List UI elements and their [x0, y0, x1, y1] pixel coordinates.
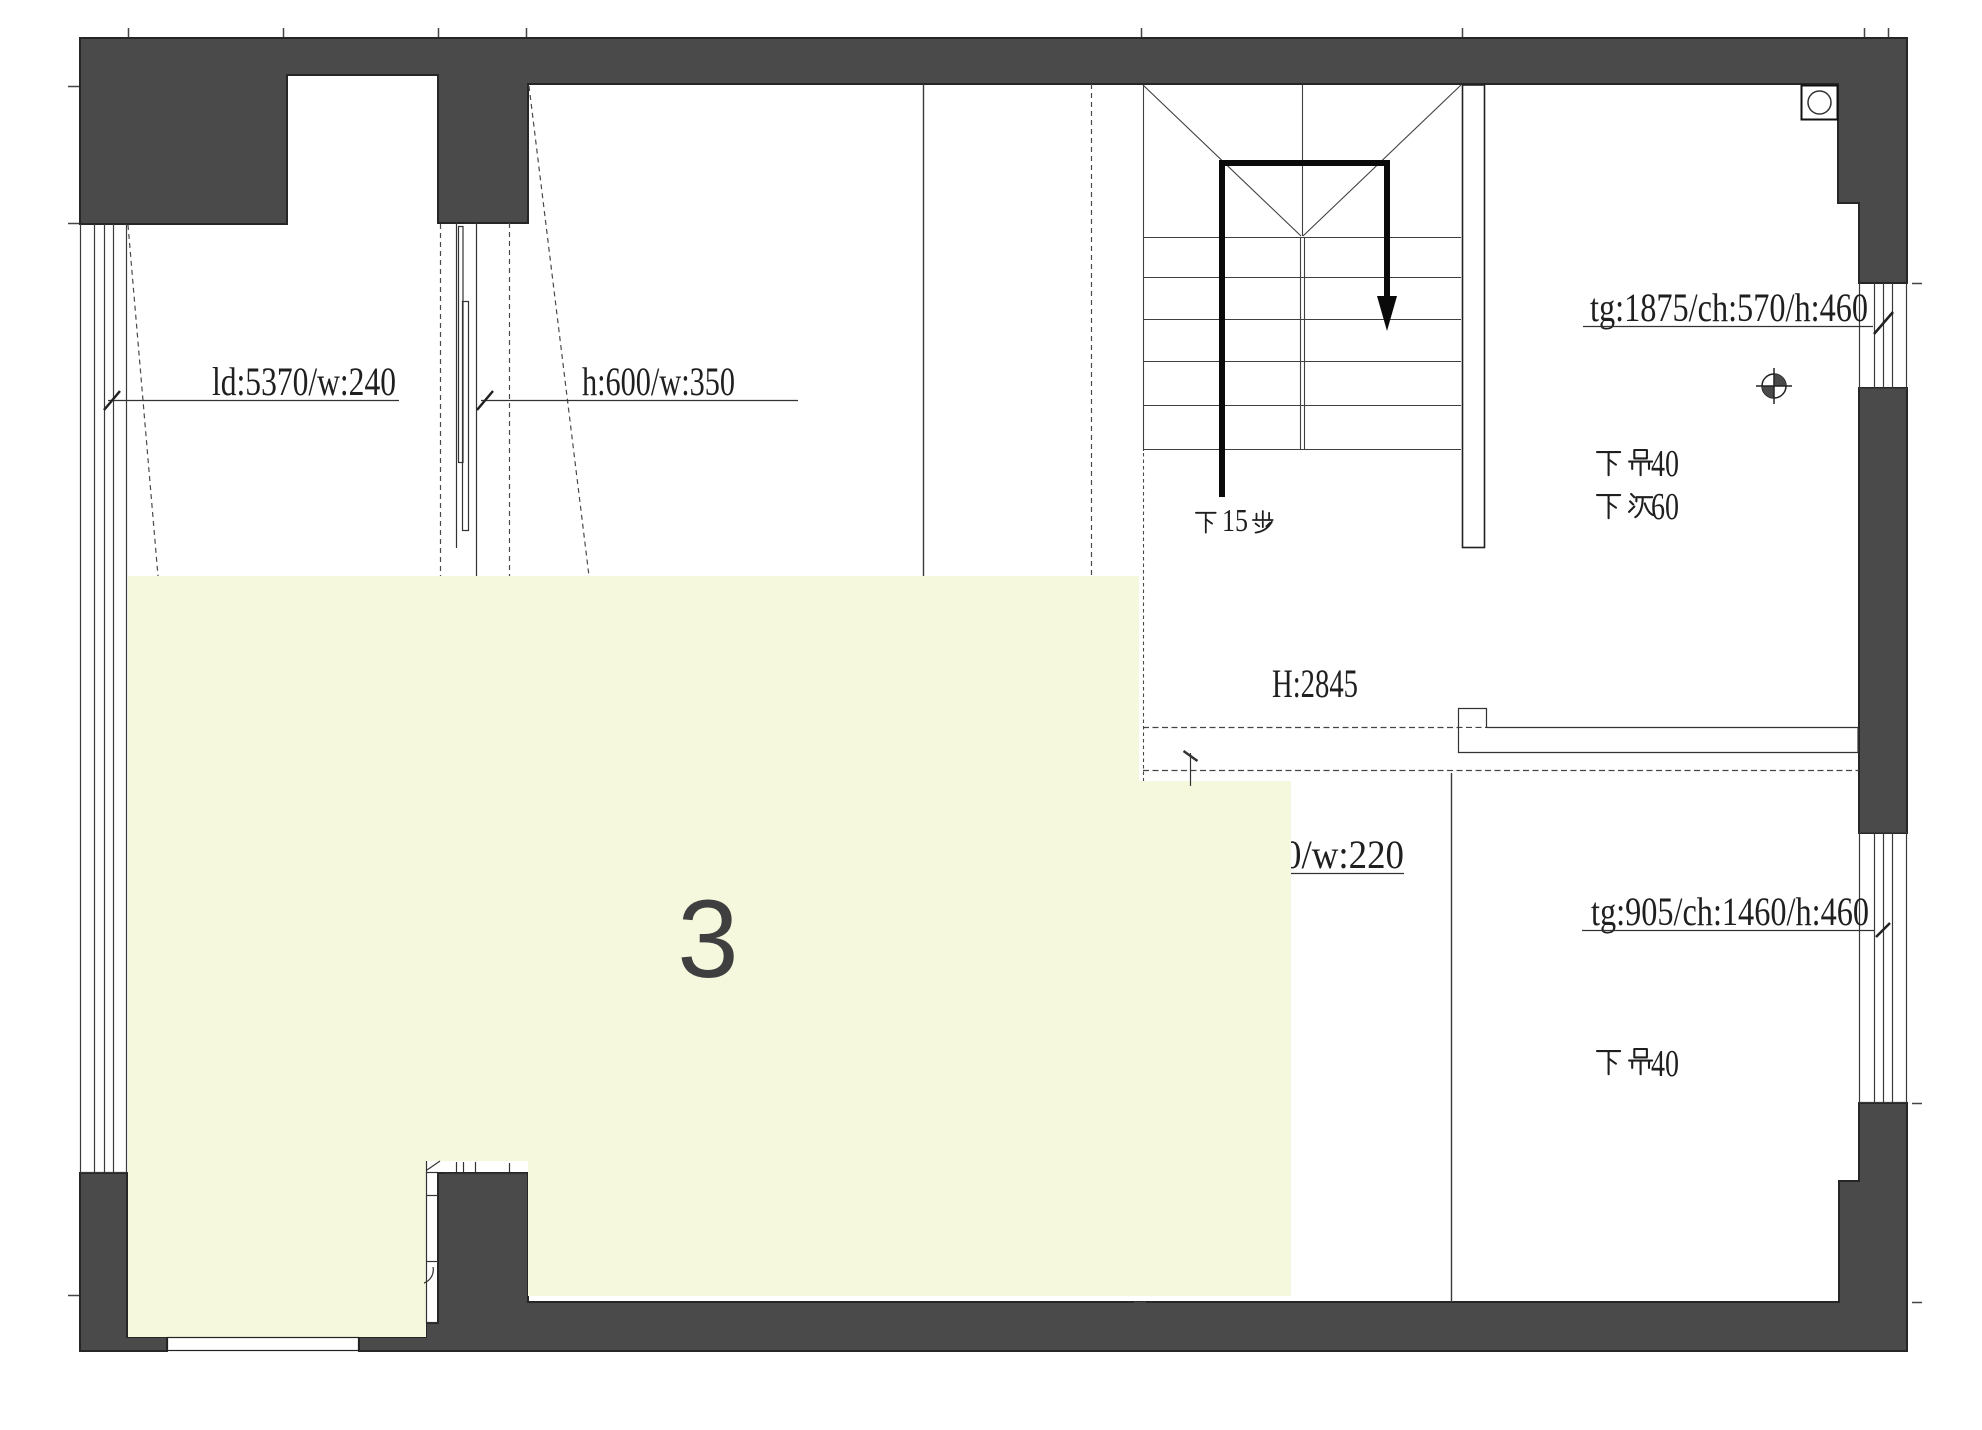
svg-text:40: 40 — [1651, 443, 1679, 485]
svg-text:40: 40 — [1651, 1043, 1679, 1085]
svg-text:H:2845: H:2845 — [1272, 661, 1358, 706]
svg-text:3: 3 — [677, 878, 738, 1001]
svg-text:ld:5370/w:240: ld:5370/w:240 — [212, 359, 396, 404]
svg-text:60: 60 — [1651, 486, 1679, 528]
svg-text:tg:1875/ch:570/h:460: tg:1875/ch:570/h:460 — [1590, 285, 1868, 330]
svg-text:0/w:220: 0/w:220 — [1283, 832, 1404, 877]
svg-text:tg:905/ch:1460/h:460: tg:905/ch:1460/h:460 — [1591, 889, 1869, 934]
svg-text:h:600/w:350: h:600/w:350 — [582, 359, 735, 404]
svg-text:15: 15 — [1222, 502, 1248, 538]
